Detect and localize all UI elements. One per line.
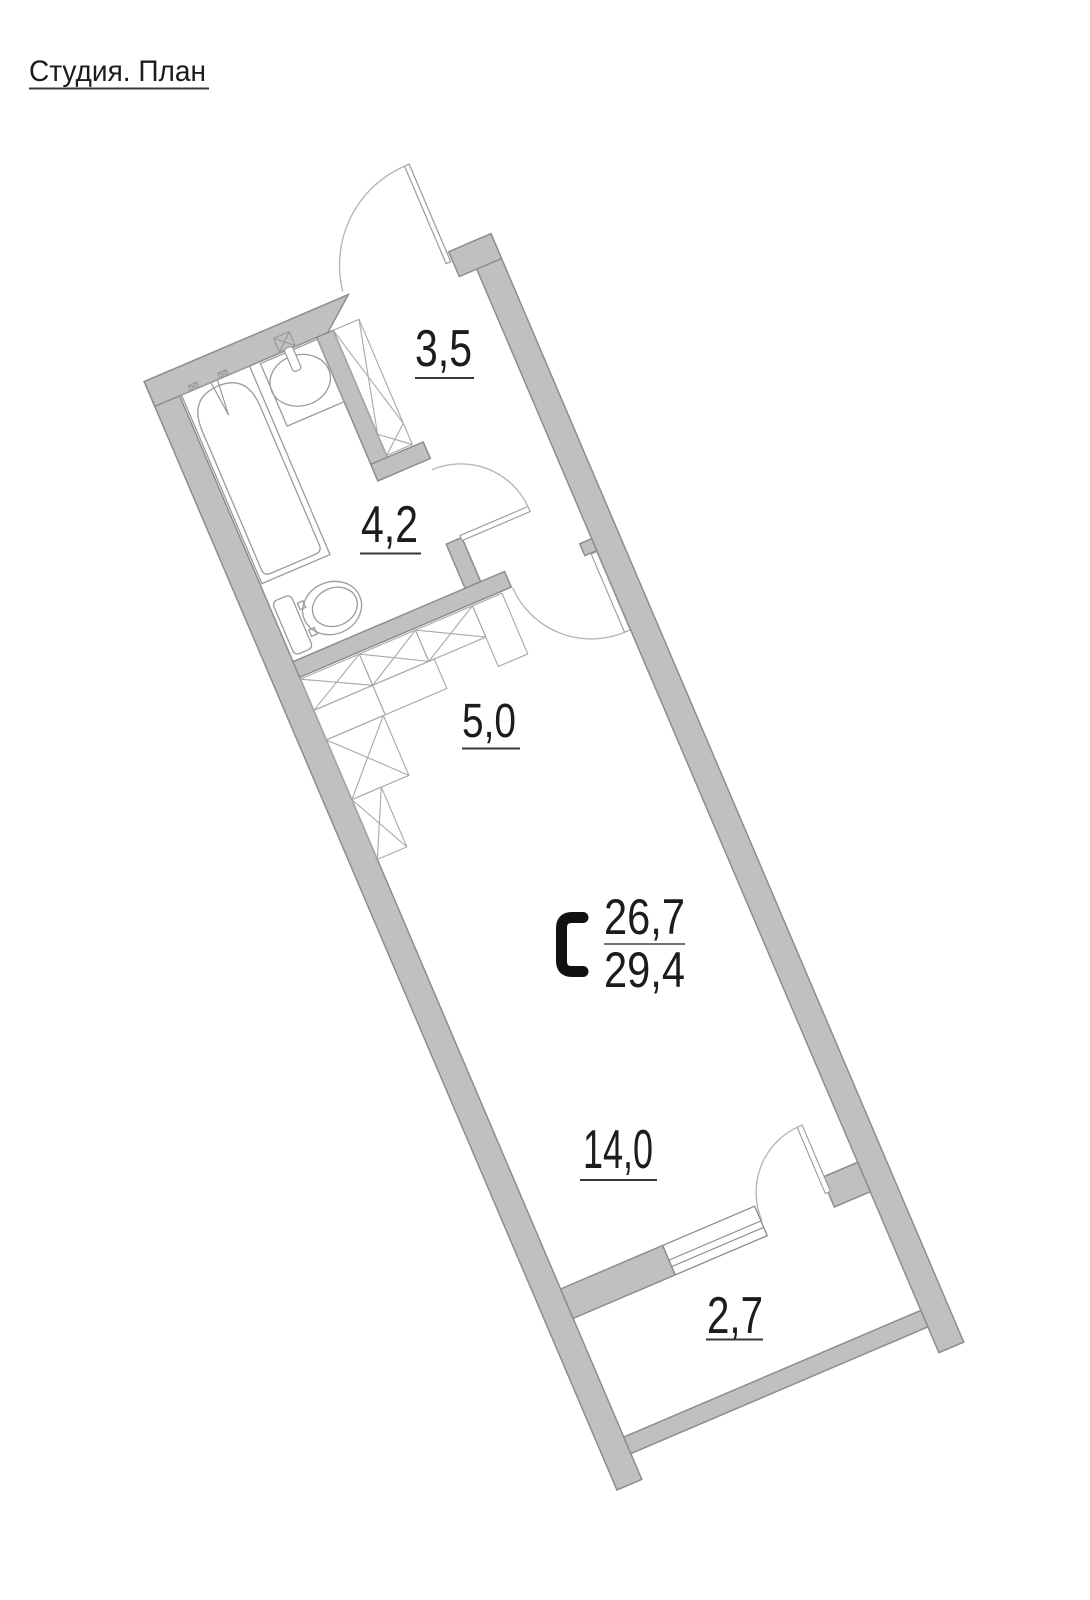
svg-text:4,2: 4,2 [361,496,418,554]
svg-text:3,5: 3,5 [415,320,472,378]
svg-text:Студия. План: Студия. План [29,55,206,88]
svg-text:5,0: 5,0 [462,695,516,748]
svg-text:26,7: 26,7 [604,889,685,945]
svg-text:29,4: 29,4 [604,942,685,998]
svg-text:2,7: 2,7 [707,1287,763,1345]
svg-text:14,0: 14,0 [583,1118,653,1180]
